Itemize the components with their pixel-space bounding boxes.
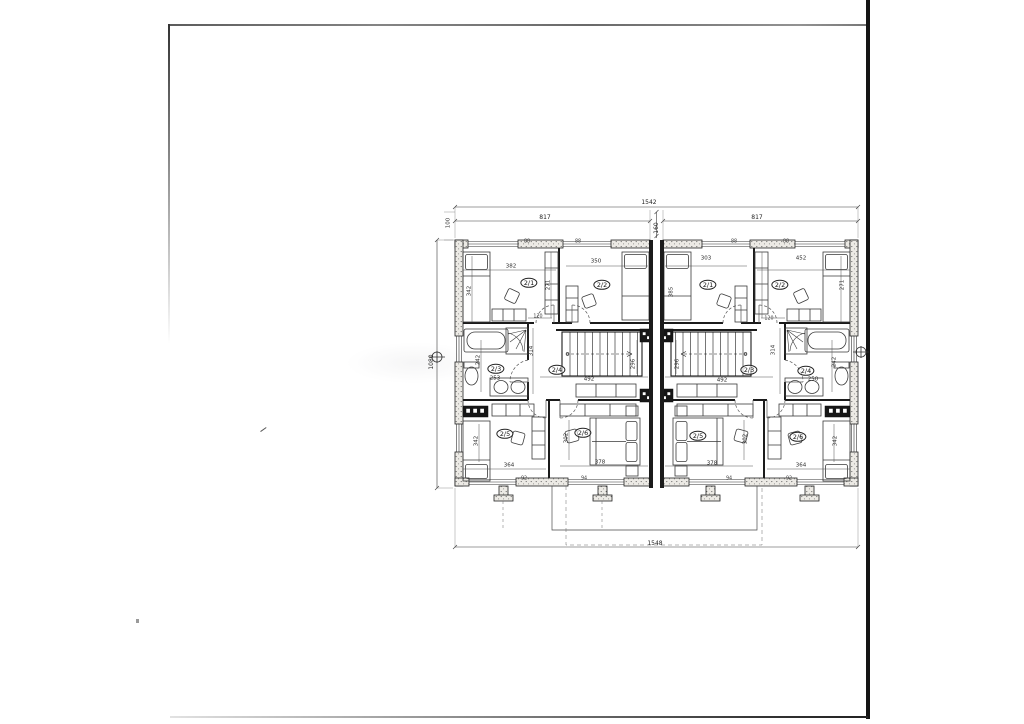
wall-mark-left-d: 88 [575, 241, 581, 246]
scanned-page: 1542 817 817 160 100 1080 1548 2/1 2/2 3… [0, 0, 1024, 724]
dim-overall-depth-left: 1080 [429, 354, 435, 369]
dim-left-bath-depth: 314 [529, 346, 535, 357]
wall-mark-right-d: 88 [783, 241, 789, 246]
dim-right-hall-width: 492 [717, 378, 728, 384]
wall-mark-right-c: 88 [731, 241, 737, 246]
dim-right-room21-bed: 385 [669, 287, 675, 298]
dim-left-room21-bed: 342 [467, 286, 473, 297]
floor-plan-drawing [0, 0, 1024, 724]
dim-unit-left-width: 817 [539, 215, 550, 221]
dim-left-door: 120 [533, 316, 542, 321]
dim-right-wc: 242 [832, 357, 838, 368]
dim-left-partition: 271 [546, 280, 552, 291]
dim-left-room25-width: 364 [504, 463, 515, 469]
wall-mark-left-b: 94 [581, 478, 587, 483]
dim-right-room25-depth: 302 [743, 434, 749, 445]
dim-left-stair-width: 296 [631, 359, 637, 370]
terrace-outline [503, 486, 762, 545]
wall-mark-left-a: 92 [521, 478, 527, 483]
dim-right-partition: 271 [840, 280, 846, 291]
dim-party-wall-width: 160 [654, 222, 660, 233]
dim-wall-offset: 100 [446, 218, 452, 229]
dim-right-room21-width: 303 [701, 256, 712, 262]
dim-right-room25-width: 378 [707, 461, 718, 467]
dim-right-room22-width: 452 [796, 256, 807, 262]
dim-right-room26-width: 364 [796, 463, 807, 469]
dim-left-wc: 242 [476, 355, 482, 366]
dim-left-hall-width: 492 [584, 377, 595, 383]
dim-left-room25-bed: 342 [474, 436, 480, 447]
dim-right-stair-width: 296 [675, 359, 681, 370]
dim-left-room21-width: 382 [506, 264, 517, 270]
dim-left-bath-width: 253 [490, 376, 501, 382]
dim-right-door: 120 [764, 318, 773, 323]
dim-left-room26-depth: 302 [564, 433, 570, 444]
dim-left-room26-width: 378 [595, 460, 606, 466]
dim-right-bath-width: 250 [808, 377, 819, 383]
dim-left-room22-width: 350 [591, 259, 602, 265]
wall-mark-right-b: 92 [786, 478, 792, 483]
dim-overall-width-bottom: 1548 [647, 541, 662, 547]
dim-right-room26-bed: 342 [833, 436, 839, 447]
dim-right-bath-depth: 314 [771, 345, 777, 356]
dim-unit-right-width: 817 [751, 215, 762, 221]
wall-mark-right-a: 94 [726, 478, 732, 483]
party-wall [649, 240, 664, 488]
wall-mark-left-c: 88 [524, 241, 530, 246]
unit-right-plan [661, 240, 858, 501]
dim-overall-width-top: 1542 [641, 200, 656, 206]
